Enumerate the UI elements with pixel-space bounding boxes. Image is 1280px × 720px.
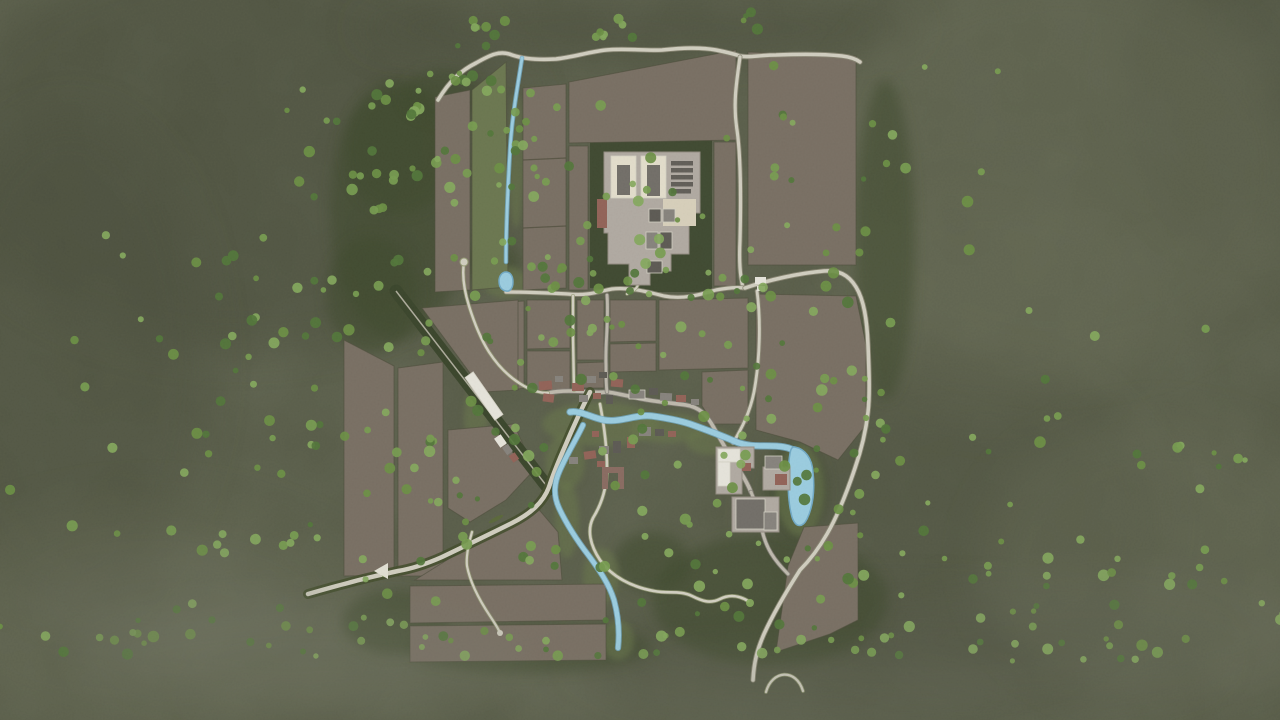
fog-patch [30,540,310,660]
map-svg [0,0,1280,720]
texture-layer [0,0,1280,720]
map-overview [0,0,1280,720]
